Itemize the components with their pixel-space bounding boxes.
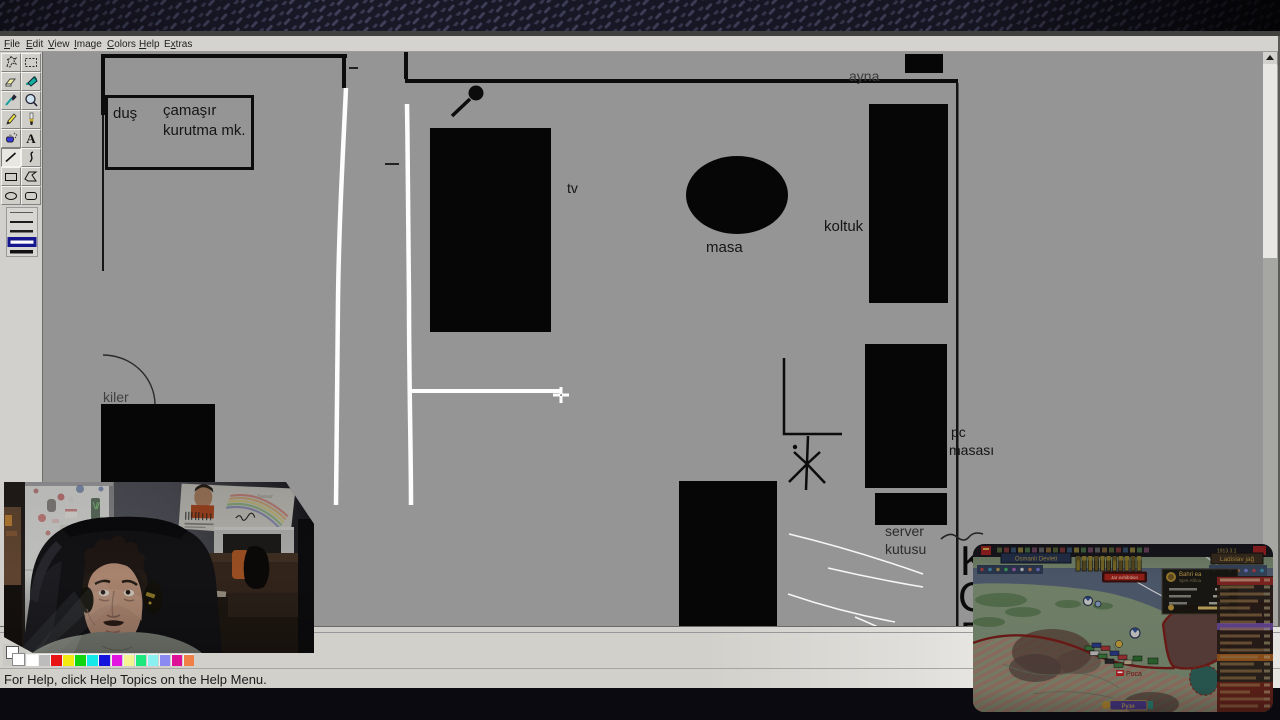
svg-text:ayna: ayna [849, 68, 880, 84]
svg-text:masası: masası [949, 442, 994, 458]
svg-text:tv: tv [567, 180, 578, 196]
svg-text:kurutma mk.: kurutma mk. [163, 122, 246, 139]
svg-text:kiler: kiler [103, 389, 129, 405]
svg-text:server: server [885, 523, 924, 539]
svg-text:çamaşır: çamaşır [163, 102, 216, 119]
svg-text:kutusu: kutusu [885, 541, 926, 557]
svg-text:koltuk: koltuk [824, 218, 864, 235]
svg-text:pc: pc [951, 424, 966, 440]
svg-text:masa: masa [706, 239, 743, 256]
svg-text:A: A [26, 131, 36, 146]
svg-text:duş: duş [113, 105, 137, 122]
